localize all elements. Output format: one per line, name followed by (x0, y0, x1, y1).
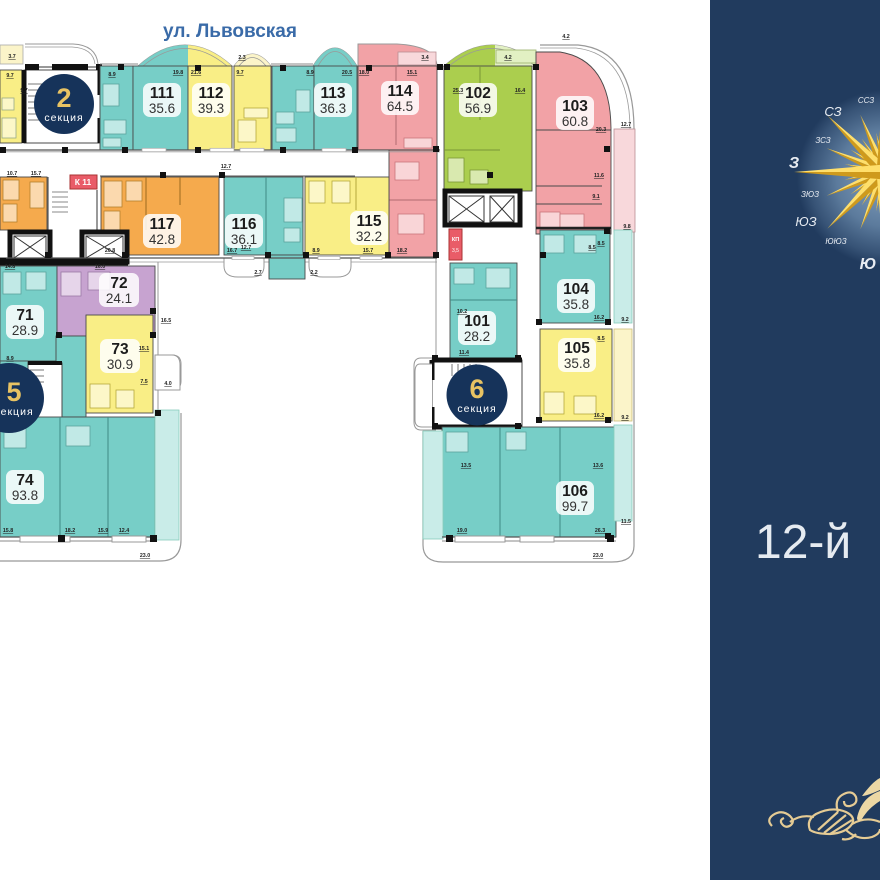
svg-text:114: 114 (387, 83, 412, 100)
svg-text:ССЗ: ССЗ (858, 96, 874, 105)
svg-text:35.8: 35.8 (564, 356, 590, 371)
svg-text:9.8: 9.8 (623, 224, 630, 230)
svg-text:9.7: 9.7 (236, 70, 243, 76)
svg-text:2.7: 2.7 (254, 270, 261, 276)
svg-text:5: 5 (6, 377, 21, 407)
svg-text:15.1: 15.1 (407, 70, 417, 76)
svg-text:99.7: 99.7 (562, 499, 588, 514)
svg-text:13.5: 13.5 (461, 463, 471, 469)
svg-text:113: 113 (320, 85, 345, 102)
svg-text:28.9: 28.9 (12, 323, 38, 338)
svg-text:72: 72 (110, 275, 127, 292)
svg-text:12.7: 12.7 (221, 164, 231, 170)
svg-text:8.9: 8.9 (312, 248, 319, 254)
svg-text:35.8: 35.8 (563, 297, 589, 312)
svg-text:64.5: 64.5 (387, 99, 413, 114)
svg-text:93.8: 93.8 (12, 488, 38, 503)
svg-text:ЮЮЗ: ЮЮЗ (825, 237, 846, 246)
svg-text:15.7: 15.7 (31, 171, 41, 177)
svg-text:секция: секция (457, 403, 496, 415)
svg-text:12.4: 12.4 (119, 528, 129, 534)
svg-text:20.3: 20.3 (596, 127, 606, 133)
svg-text:102: 102 (465, 85, 491, 102)
svg-text:8.5: 8.5 (588, 245, 595, 251)
svg-text:19.8: 19.8 (173, 70, 183, 76)
svg-text:18.0: 18.0 (359, 70, 369, 76)
svg-text:39.3: 39.3 (198, 101, 224, 116)
svg-text:6: 6 (469, 374, 484, 404)
svg-text:18.2: 18.2 (65, 528, 75, 534)
svg-text:4.0: 4.0 (164, 381, 171, 387)
svg-text:15.8: 15.8 (3, 528, 13, 534)
svg-text:ЗЮЗ: ЗЮЗ (801, 190, 819, 199)
svg-text:Ю: Ю (860, 256, 877, 273)
svg-text:12.7: 12.7 (621, 122, 631, 128)
svg-text:15.9: 15.9 (98, 528, 108, 534)
svg-text:13.6: 13.6 (593, 463, 603, 469)
svg-text:9.7: 9.7 (6, 73, 13, 79)
svg-text:23.0: 23.0 (593, 553, 603, 559)
svg-text:К 11: К 11 (75, 177, 92, 187)
svg-text:32.2: 32.2 (356, 229, 382, 244)
svg-text:ЗСЗ: ЗСЗ (815, 136, 830, 145)
svg-text:З: З (789, 155, 799, 172)
svg-text:28.2: 28.2 (464, 329, 490, 344)
svg-text:СЗ: СЗ (824, 104, 841, 119)
svg-text:8.9: 8.9 (108, 72, 115, 78)
svg-text:4.2: 4.2 (562, 34, 569, 40)
svg-text:36.3: 36.3 (320, 101, 346, 116)
svg-text:20.8: 20.8 (105, 248, 115, 254)
svg-text:105: 105 (564, 340, 590, 357)
svg-text:10.7: 10.7 (7, 171, 17, 177)
svg-text:106: 106 (562, 483, 588, 500)
svg-text:2.3: 2.3 (238, 55, 245, 61)
svg-text:16.0: 16.0 (95, 264, 105, 270)
svg-text:30.9: 30.9 (107, 357, 133, 372)
svg-text:103: 103 (562, 98, 588, 115)
svg-text:12-й: 12-й (755, 516, 851, 569)
svg-text:11.6: 11.6 (594, 173, 604, 179)
svg-text:9.2: 9.2 (621, 415, 628, 421)
svg-text:КП: КП (452, 237, 459, 243)
svg-text:ЮЗ: ЮЗ (795, 214, 816, 229)
svg-text:104: 104 (563, 281, 589, 298)
svg-text:20.5: 20.5 (342, 70, 352, 76)
svg-text:18.2: 18.2 (397, 248, 407, 254)
svg-text:2.2: 2.2 (310, 270, 317, 276)
svg-text:16.7: 16.7 (227, 248, 237, 254)
svg-text:74: 74 (16, 472, 34, 489)
svg-text:16.2: 16.2 (594, 315, 604, 321)
svg-text:15.1: 15.1 (139, 346, 149, 352)
svg-text:7.5: 7.5 (140, 379, 147, 385)
svg-text:9.2: 9.2 (621, 317, 628, 323)
svg-text:3.4: 3.4 (421, 55, 428, 61)
svg-text:2: 2 (56, 83, 71, 113)
svg-text:секция: секция (0, 406, 34, 418)
svg-text:60.8: 60.8 (562, 114, 588, 129)
svg-text:3,5: 3,5 (452, 248, 459, 254)
svg-text:3.7: 3.7 (8, 54, 15, 60)
svg-text:21.6: 21.6 (191, 70, 201, 76)
svg-text:8.5: 8.5 (597, 336, 604, 342)
svg-text:16.2: 16.2 (594, 413, 604, 419)
svg-text:16.4: 16.4 (515, 88, 525, 94)
svg-text:112: 112 (198, 85, 223, 102)
svg-text:11.4: 11.4 (459, 350, 469, 356)
svg-text:116: 116 (231, 216, 256, 233)
svg-text:16.5: 16.5 (161, 318, 171, 324)
svg-text:9.1: 9.1 (592, 194, 599, 200)
svg-text:26.3: 26.3 (595, 528, 605, 534)
svg-text:секция: секция (44, 112, 83, 124)
svg-text:101: 101 (464, 313, 490, 330)
svg-text:11.5: 11.5 (621, 519, 631, 525)
svg-text:117: 117 (149, 216, 174, 233)
svg-text:12.7: 12.7 (241, 245, 251, 251)
svg-text:23.0: 23.0 (140, 553, 150, 559)
svg-text:25.3: 25.3 (453, 88, 463, 94)
svg-text:56.9: 56.9 (465, 101, 491, 116)
svg-text:42.8: 42.8 (149, 232, 175, 247)
svg-text:73: 73 (111, 341, 129, 358)
svg-text:71: 71 (16, 307, 34, 324)
svg-text:8.9: 8.9 (6, 356, 13, 362)
svg-text:111: 111 (150, 85, 175, 102)
svg-text:24.1: 24.1 (106, 291, 132, 306)
svg-text:10.2: 10.2 (457, 309, 467, 315)
svg-text:8.9: 8.9 (306, 70, 313, 76)
svg-text:ул. Львовская: ул. Львовская (163, 21, 297, 42)
svg-text:8.5: 8.5 (597, 241, 604, 247)
svg-text:115: 115 (356, 213, 381, 230)
svg-text:14.8: 14.8 (5, 264, 15, 270)
svg-text:15.7: 15.7 (363, 248, 373, 254)
svg-text:4.2: 4.2 (504, 55, 511, 61)
svg-text:35.6: 35.6 (149, 101, 175, 116)
svg-text:19.0: 19.0 (457, 528, 467, 534)
svg-text:9.7: 9.7 (20, 88, 27, 94)
